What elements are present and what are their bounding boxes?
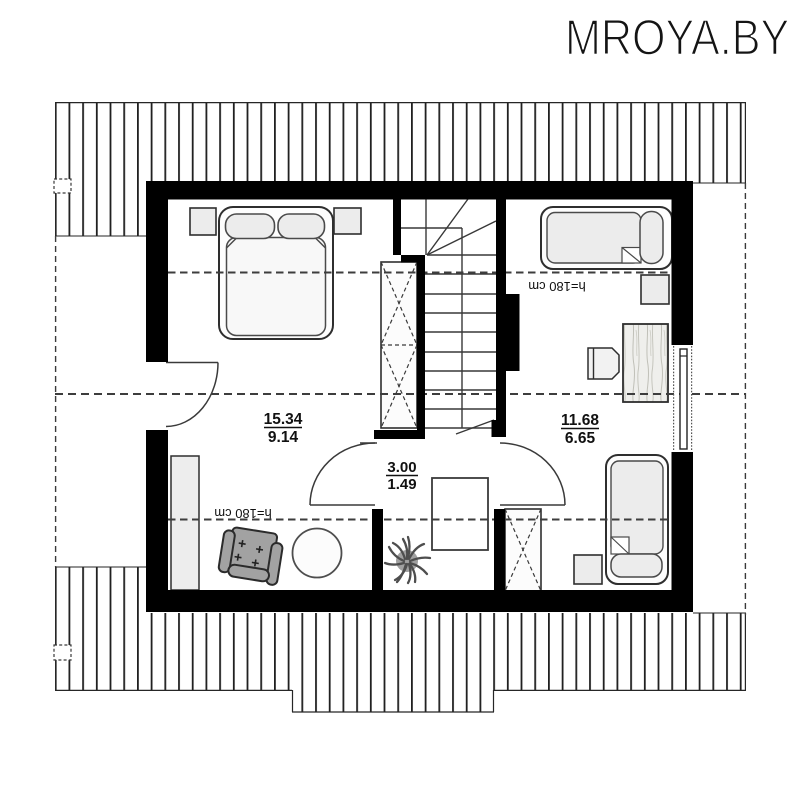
svg-text:h=180 cm: h=180 cm	[214, 506, 271, 521]
svg-text:MROYA.BY: MROYA.BY	[565, 10, 789, 66]
svg-text:6.65: 6.65	[565, 430, 596, 447]
svg-text:15.34: 15.34	[264, 411, 303, 428]
svg-text:h=180 cm: h=180 cm	[528, 279, 585, 294]
svg-text:9.14: 9.14	[268, 429, 299, 446]
svg-text:1.49: 1.49	[387, 476, 416, 493]
svg-text:3.00: 3.00	[387, 459, 416, 476]
svg-text:11.68: 11.68	[561, 412, 599, 429]
